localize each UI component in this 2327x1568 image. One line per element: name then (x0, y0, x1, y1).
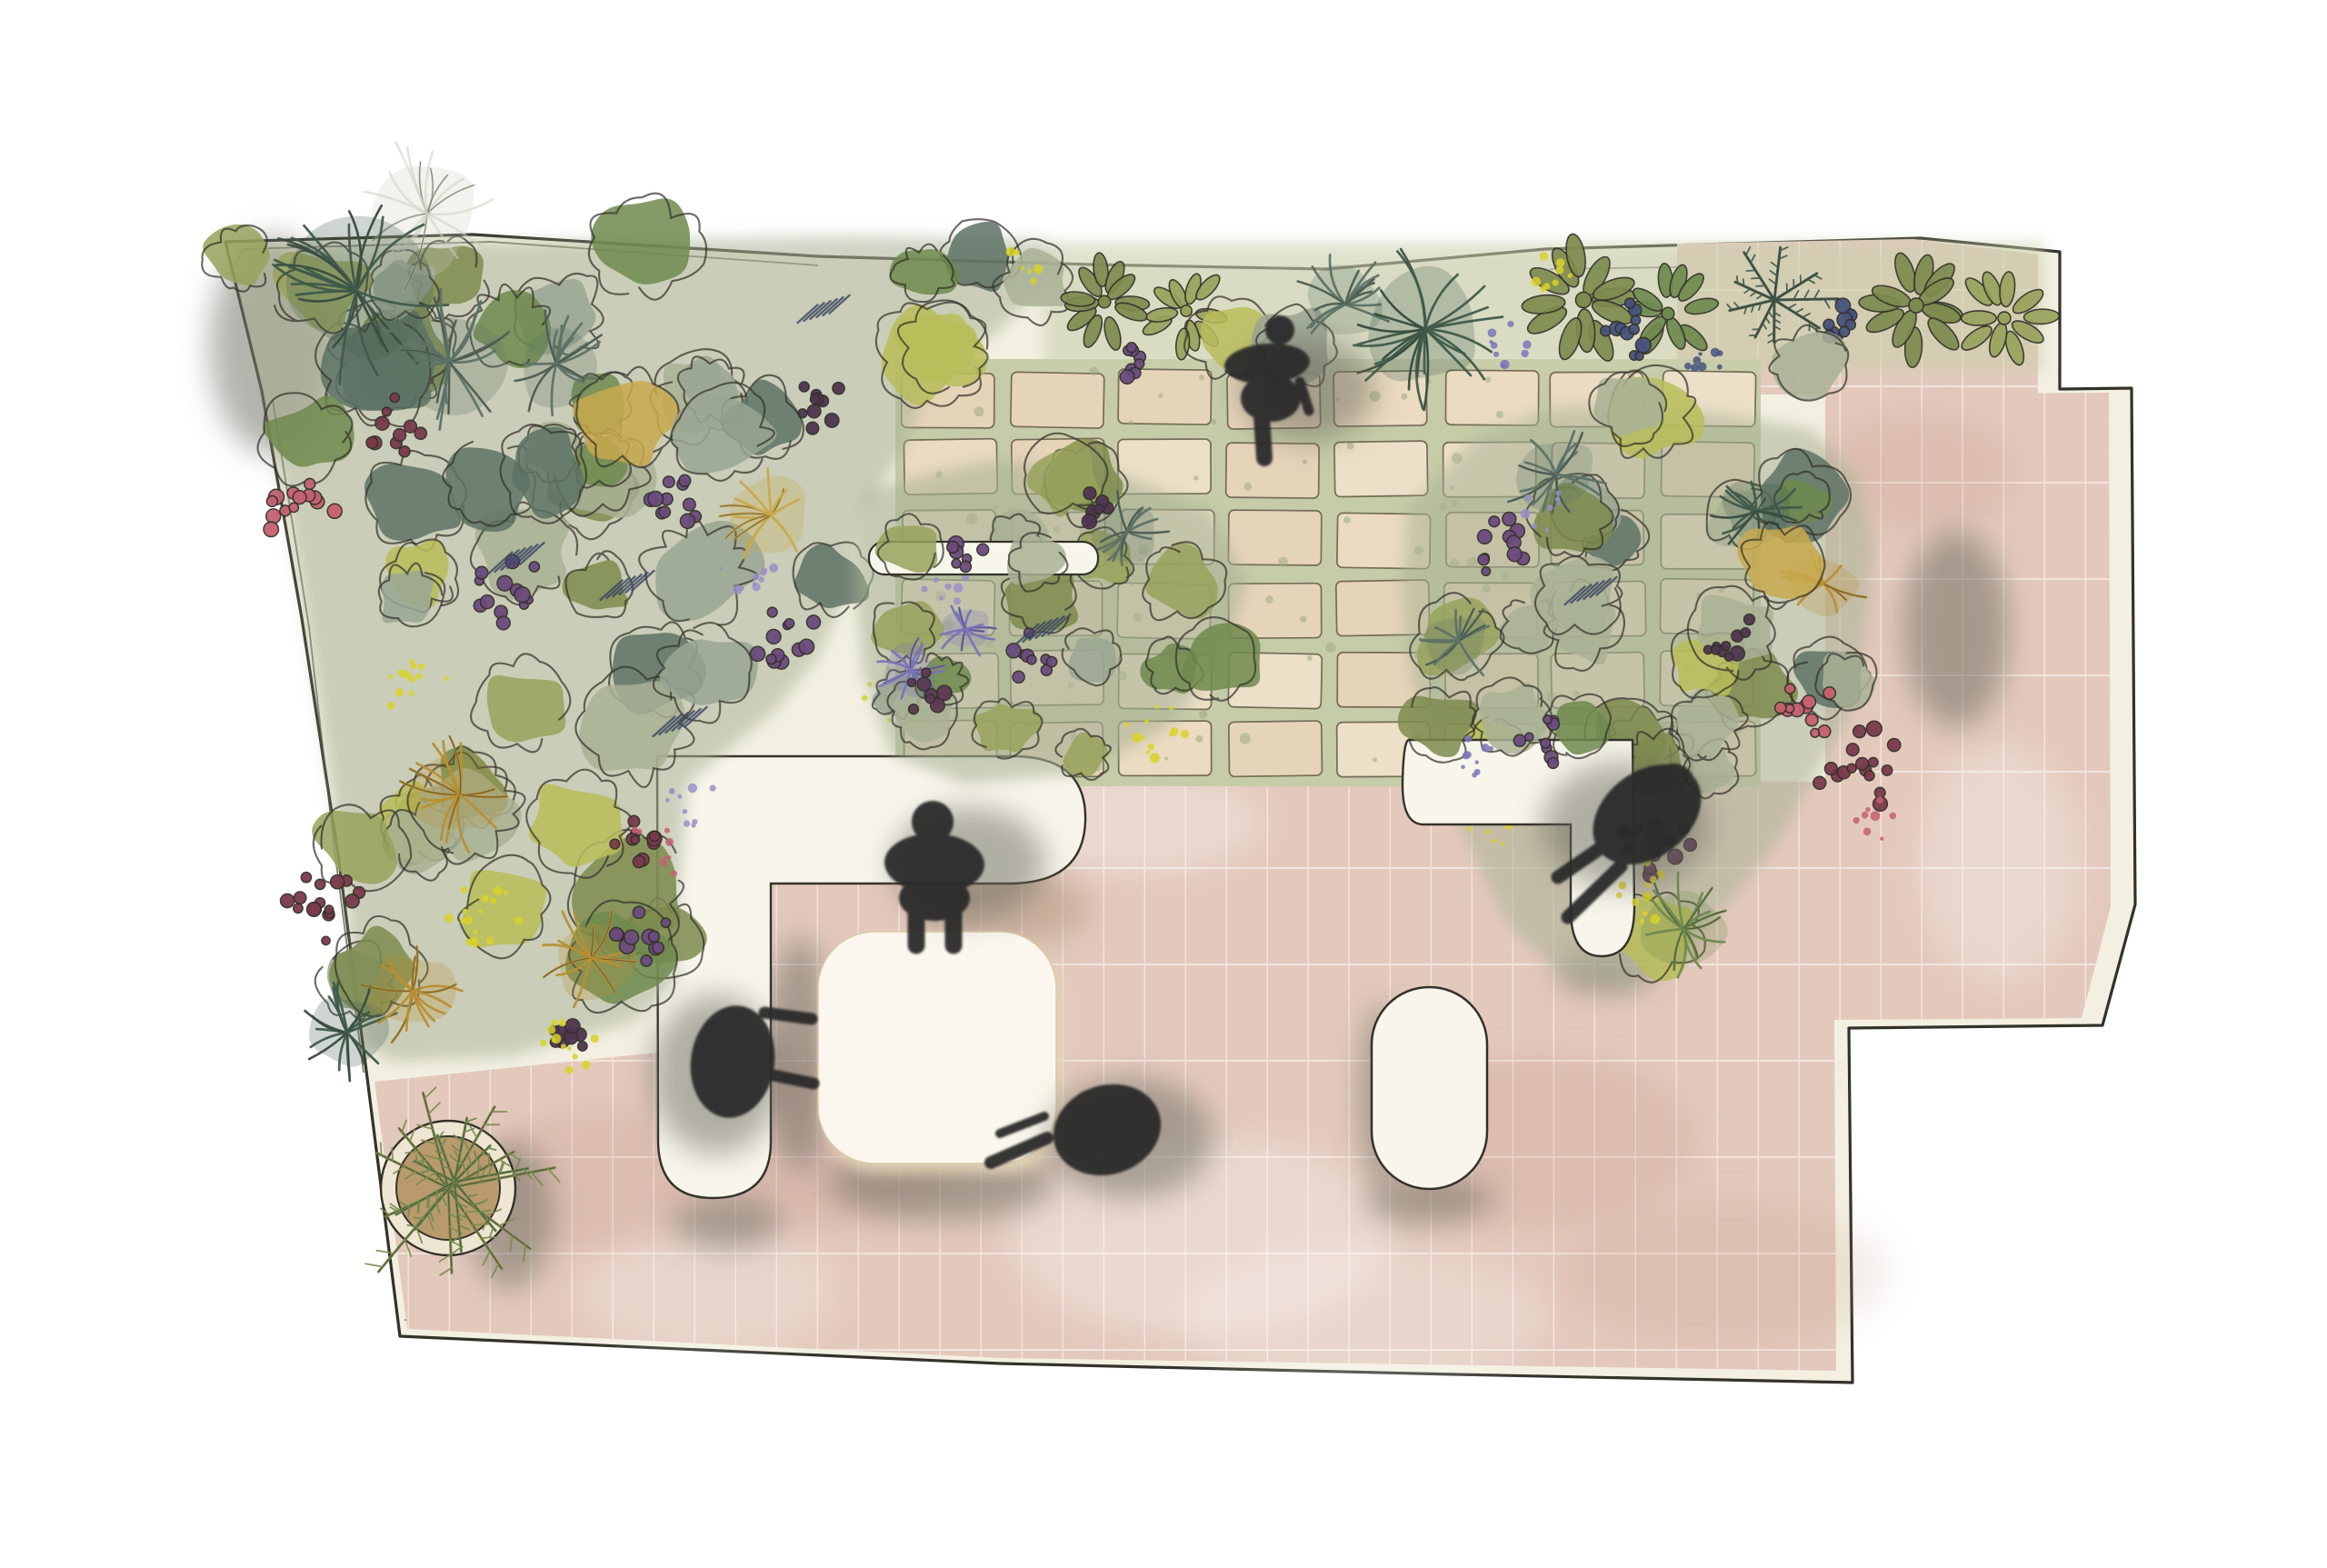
garden-plan-canvas (0, 0, 2327, 1568)
plant-shrub (463, 870, 547, 947)
oval-bench (1372, 987, 1487, 1189)
soft-shadow (1903, 531, 2009, 727)
stepping-paver (1334, 441, 1428, 497)
stepping-paver (1228, 510, 1322, 565)
watercolor-blotch (1563, 1200, 1891, 1345)
watercolor-blotch (1182, 1245, 1545, 1391)
stepping-paver (1229, 721, 1323, 776)
stepping-paver (1011, 372, 1104, 428)
plant-shrub (487, 675, 565, 743)
soft-shadow (673, 1197, 782, 1248)
plan-layers (202, 142, 2135, 1391)
stepping-paver (1445, 370, 1538, 425)
watercolor-blotch (1918, 745, 2082, 982)
stepping-paver (1226, 443, 1320, 498)
garden-plan-illustration (0, 0, 2327, 1568)
